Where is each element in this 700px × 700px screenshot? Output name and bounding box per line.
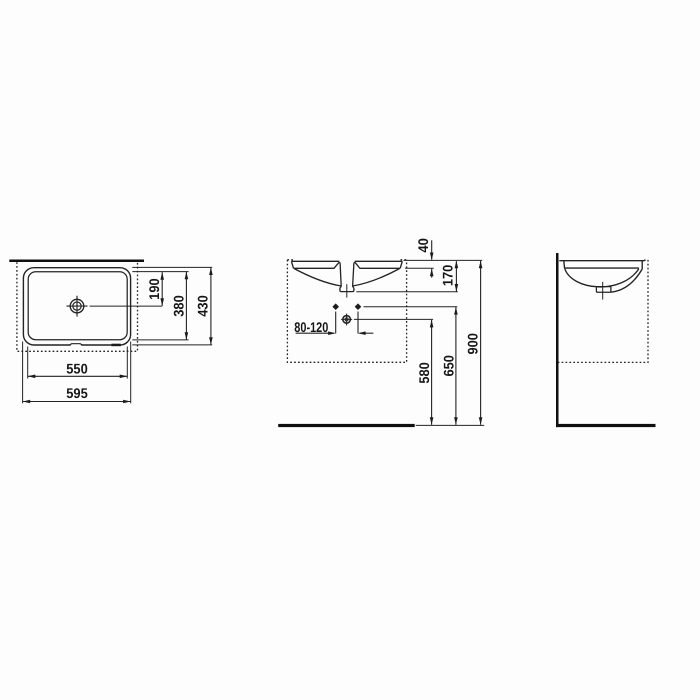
svg-text:170: 170	[440, 264, 456, 286]
svg-text:900: 900	[465, 333, 481, 355]
svg-text:40: 40	[415, 238, 431, 253]
svg-text:550: 550	[66, 360, 88, 376]
svg-text:190: 190	[146, 278, 162, 300]
svg-text:650: 650	[441, 355, 457, 377]
svg-text:380: 380	[170, 295, 186, 317]
svg-text:580: 580	[416, 362, 432, 384]
svg-text:430: 430	[195, 295, 211, 317]
svg-text:595: 595	[66, 385, 88, 401]
svg-text:80-120: 80-120	[294, 319, 328, 335]
